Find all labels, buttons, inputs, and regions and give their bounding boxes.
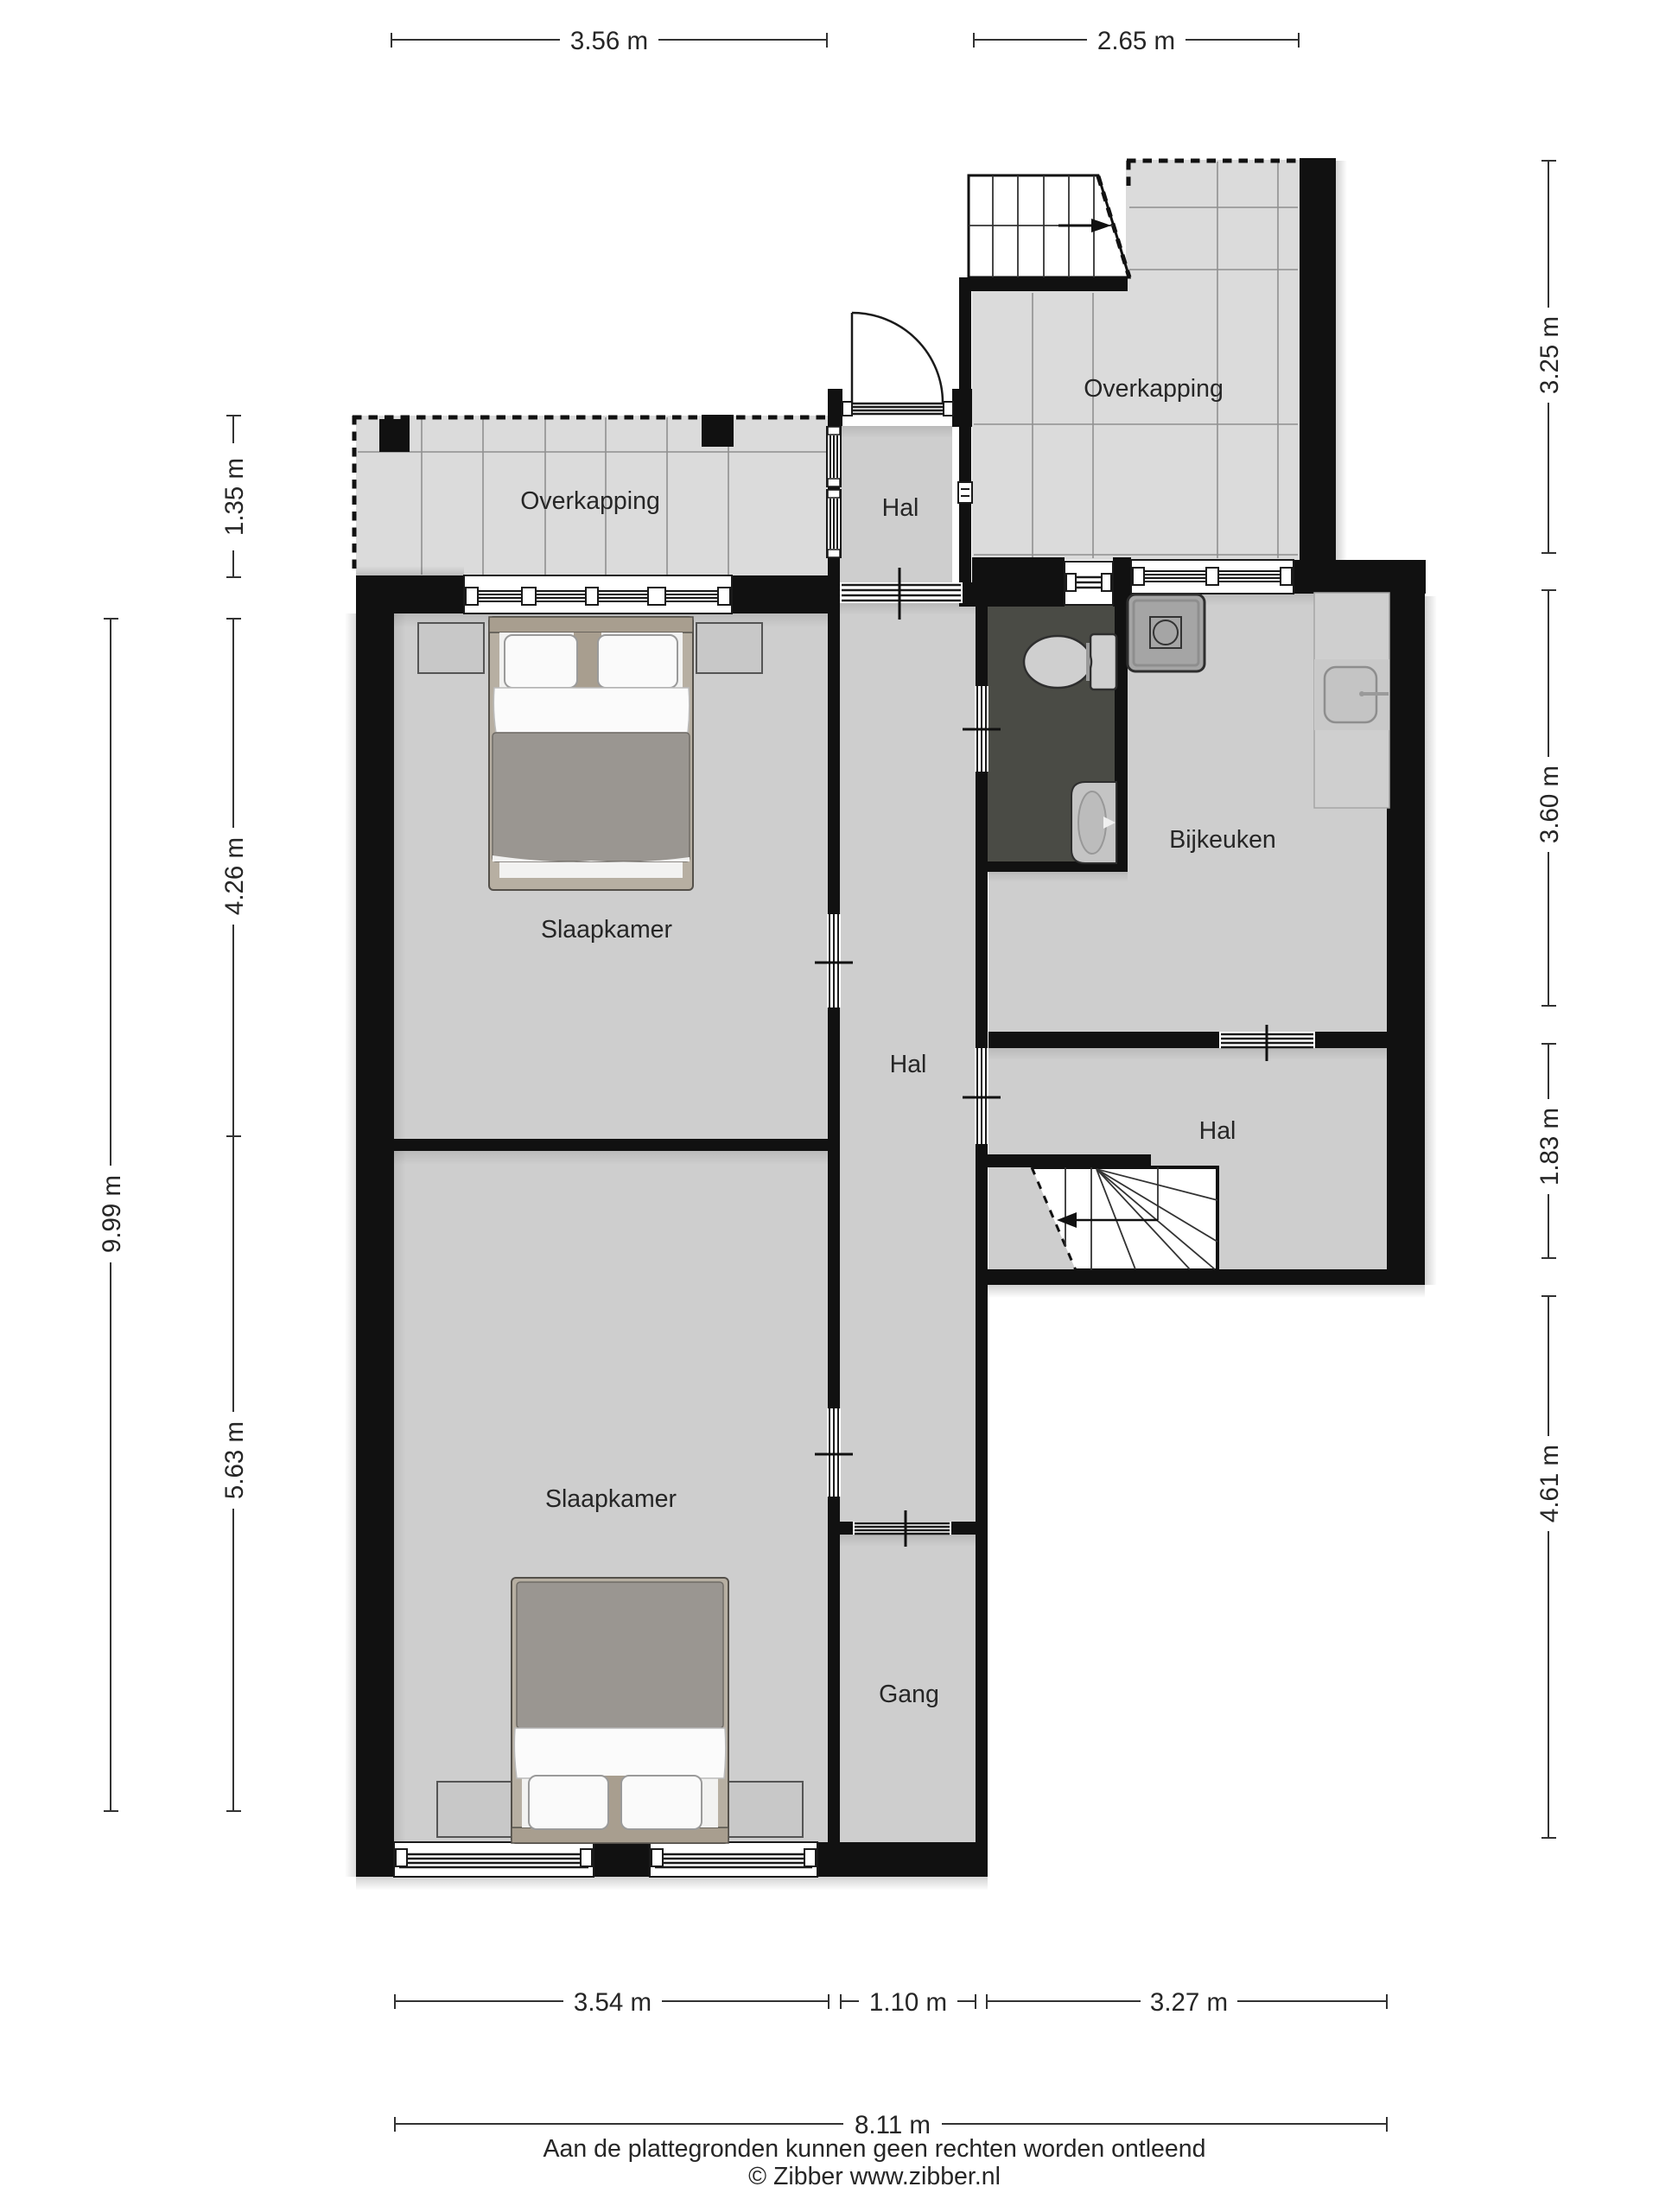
svg-text:1.35 m: 1.35 m — [220, 458, 249, 536]
svg-text:Overkapping: Overkapping — [1084, 375, 1224, 403]
svg-text:Bijkeuken: Bijkeuken — [1169, 826, 1276, 854]
svg-text:3.27 m: 3.27 m — [1150, 1988, 1228, 2017]
svg-text:3.25 m: 3.25 m — [1535, 316, 1564, 394]
svg-text:3.56 m: 3.56 m — [570, 27, 648, 55]
svg-text:9.99 m: 9.99 m — [98, 1175, 126, 1253]
svg-text:4.26 m: 4.26 m — [220, 837, 249, 915]
svg-text:1.83 m: 1.83 m — [1535, 1108, 1564, 1185]
svg-text:2.65 m: 2.65 m — [1097, 27, 1175, 55]
svg-text:Hal: Hal — [890, 1051, 927, 1078]
svg-text:3.60 m: 3.60 m — [1535, 766, 1564, 843]
svg-text:5.63 m: 5.63 m — [220, 1421, 249, 1499]
svg-text:3.54 m: 3.54 m — [574, 1988, 652, 2017]
svg-text:Gang: Gang — [879, 1681, 939, 1708]
svg-text:Hal: Hal — [882, 494, 919, 522]
svg-text:© Zibber www.zibber.nl: © Zibber www.zibber.nl — [748, 2163, 1001, 2190]
svg-text:4.61 m: 4.61 m — [1535, 1445, 1564, 1522]
svg-text:Overkapping: Overkapping — [520, 487, 660, 515]
svg-text:Slaapkamer: Slaapkamer — [541, 916, 673, 944]
svg-text:Slaapkamer: Slaapkamer — [545, 1485, 677, 1513]
svg-text:1.10 m: 1.10 m — [869, 1988, 947, 2017]
svg-text:Aan de plattegronden kunnen ge: Aan de plattegronden kunnen geen rechten… — [543, 2135, 1206, 2163]
svg-text:Hal: Hal — [1199, 1117, 1236, 1145]
